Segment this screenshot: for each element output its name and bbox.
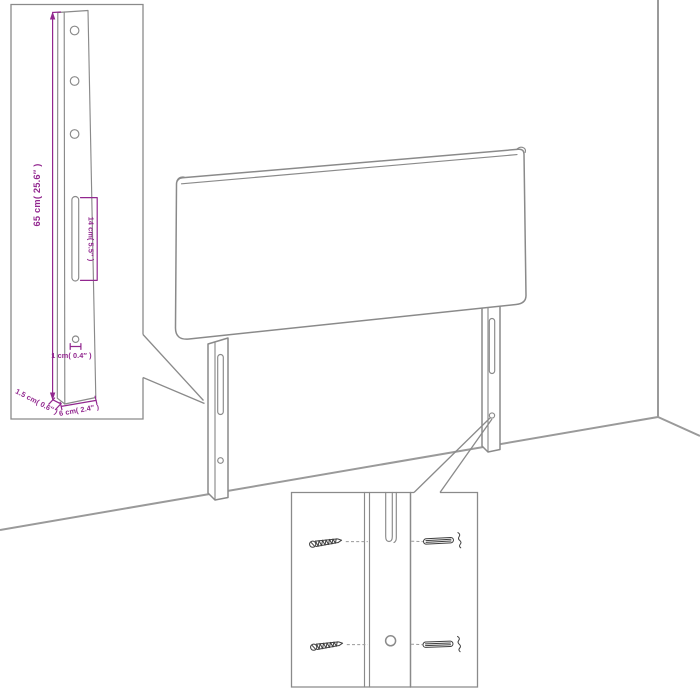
headboard-panel [175,147,526,339]
fixings-callout-leader-right [440,419,492,493]
screw-icon [309,537,342,548]
callout-box-bracket: 65 cm( 25.6″ ) 14 cm( 5.5″ ) 1 cm( 0.4″ … [11,5,205,420]
dimension-thickness: 1.5 cm( 0.6″ ) [14,387,61,417]
screw-icon [310,640,343,651]
bracket-edge [64,12,65,404]
bracket-detail [57,11,96,405]
leg-closeup-slot [386,493,393,542]
fixings-callout-border [292,493,478,688]
floor-line-right [658,417,700,436]
leg-closeup-detail [365,493,411,688]
floor-line-left [0,417,658,530]
headboard-left-leg [208,338,228,500]
wall-plug-icon [423,532,461,549]
dimension-total-height: 65 cm( 25.6″ ) [32,12,61,404]
panel-face [175,149,526,339]
dim-label-slot-height: 14 cm( 5.5″ ) [87,217,96,262]
bracket-slot [72,197,79,282]
dim-label-total-height: 65 cm( 25.6″ ) [32,163,42,226]
fixing-hardware [309,532,461,653]
fixings-callout-leader-left [414,418,491,493]
bracket-callout-leader-bottom [143,378,205,404]
leg-closeup-slot-depth [394,493,396,543]
dim-label-hole-diameter: 1 cm( 0.4″ ) [51,351,92,360]
right-leg-slot [489,319,494,374]
diagram-svg: 65 cm( 25.6″ ) 14 cm( 5.5″ ) 1 cm( 0.4″ … [0,0,700,700]
wall-plug-icon [423,636,461,653]
left-leg-slot [218,355,224,415]
leg-closeup-hole [386,636,396,646]
callout-box-fixings [292,418,493,688]
headboard-dimension-diagram: 65 cm( 25.6″ ) 14 cm( 5.5″ ) 1 cm( 0.4″ … [0,0,700,700]
